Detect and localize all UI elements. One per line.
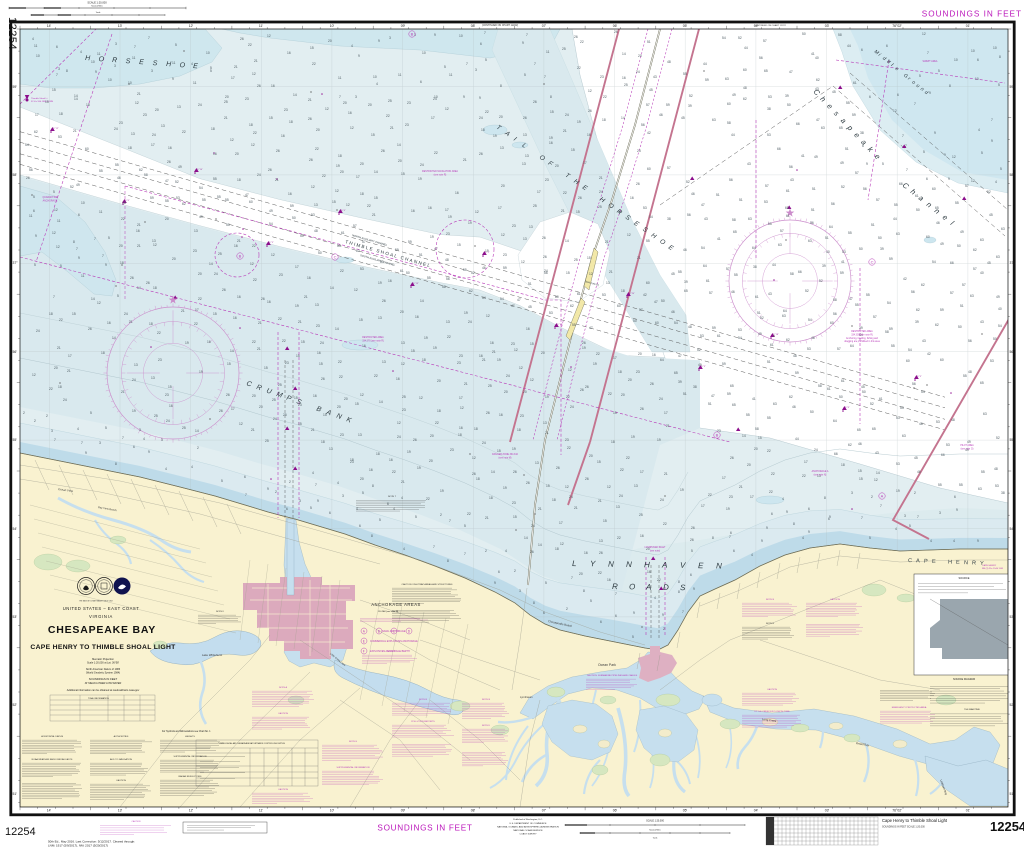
svg-text:40: 40 — [998, 307, 1002, 311]
svg-text:51: 51 — [871, 223, 875, 227]
svg-text:63: 63 — [1001, 227, 1005, 231]
svg-text:4: 4 — [32, 37, 34, 41]
svg-text:56: 56 — [912, 382, 916, 386]
svg-text:57: 57 — [973, 267, 977, 271]
svg-text:14: 14 — [137, 286, 141, 290]
svg-text:50: 50 — [300, 234, 304, 238]
svg-text:6: 6 — [359, 524, 361, 528]
svg-text:25: 25 — [283, 413, 287, 417]
svg-text:61: 61 — [706, 279, 710, 283]
svg-text:13′: 13′ — [118, 809, 123, 813]
svg-text:51: 51 — [739, 198, 743, 202]
svg-text:12254: 12254 — [6, 17, 18, 50]
svg-text:AUTHORITIES: AUTHORITIES — [114, 735, 129, 738]
svg-text:3: 3 — [355, 95, 357, 99]
svg-text:15: 15 — [603, 519, 607, 523]
svg-text:NOTE 7: NOTE 7 — [388, 496, 397, 498]
svg-text:56′: 56′ — [13, 350, 18, 354]
svg-text:18: 18 — [59, 112, 63, 116]
svg-text:4: 4 — [978, 128, 980, 132]
svg-text:60: 60 — [830, 321, 834, 325]
svg-text:61: 61 — [770, 343, 774, 347]
svg-text:47: 47 — [589, 326, 593, 330]
svg-text:58: 58 — [838, 33, 842, 37]
svg-text:50: 50 — [958, 325, 962, 329]
svg-text:21: 21 — [485, 516, 489, 520]
svg-text:51: 51 — [811, 208, 815, 212]
svg-text:53: 53 — [738, 328, 742, 332]
svg-text:55: 55 — [959, 483, 963, 487]
svg-text:25: 25 — [562, 47, 566, 51]
svg-text:2: 2 — [485, 549, 487, 553]
svg-text:13: 13 — [401, 341, 405, 345]
svg-text:44: 44 — [847, 44, 851, 48]
svg-text:51: 51 — [757, 311, 761, 315]
svg-text:21: 21 — [57, 346, 61, 350]
svg-text:TIDAL INFORMATION: TIDAL INFORMATION — [88, 697, 109, 700]
svg-text:59′: 59′ — [1010, 85, 1015, 89]
svg-text:19: 19 — [512, 447, 516, 451]
svg-text:20: 20 — [579, 572, 583, 576]
svg-text:For Symbols and Abbreviations: For Symbols and Abbreviations see Chart … — [162, 730, 211, 733]
svg-text:58′: 58′ — [13, 173, 18, 177]
svg-text:52: 52 — [697, 348, 701, 352]
svg-text:21: 21 — [73, 129, 77, 133]
svg-text:58: 58 — [727, 121, 731, 125]
svg-text:24: 24 — [636, 70, 640, 74]
svg-text:61: 61 — [717, 334, 721, 338]
svg-text:19: 19 — [132, 409, 136, 413]
svg-text:12: 12 — [230, 138, 234, 142]
svg-text:H: H — [644, 560, 650, 569]
svg-text:7: 7 — [245, 493, 247, 497]
svg-text:10: 10 — [206, 51, 210, 55]
svg-text:47: 47 — [816, 118, 820, 122]
svg-text:60: 60 — [655, 321, 659, 325]
svg-text:53: 53 — [337, 244, 341, 248]
svg-text:26: 26 — [533, 100, 537, 104]
svg-text:55: 55 — [213, 177, 217, 181]
svg-text:25: 25 — [265, 439, 269, 443]
svg-text:44: 44 — [893, 217, 897, 221]
svg-text:20: 20 — [316, 128, 320, 132]
svg-text:12: 12 — [874, 478, 878, 482]
svg-text:22: 22 — [769, 490, 773, 494]
svg-text:46: 46 — [691, 192, 695, 196]
svg-text:22: 22 — [182, 130, 186, 134]
svg-text:53: 53 — [995, 484, 999, 488]
svg-text:3: 3 — [139, 428, 141, 432]
svg-text:24: 24 — [63, 398, 67, 402]
svg-text:23: 23 — [284, 108, 288, 112]
svg-text:66: 66 — [834, 452, 838, 456]
svg-text:12: 12 — [530, 378, 534, 382]
svg-text:14′: 14′ — [47, 809, 52, 813]
svg-text:26: 26 — [261, 297, 265, 301]
svg-text:22: 22 — [608, 392, 612, 396]
svg-text:4: 4 — [351, 44, 353, 48]
svg-text:R "20": R "20" — [629, 293, 635, 295]
svg-text:E: E — [193, 63, 198, 70]
svg-text:46: 46 — [117, 176, 121, 180]
svg-text:04′: 04′ — [754, 809, 759, 813]
svg-text:43: 43 — [980, 320, 984, 324]
svg-text:13: 13 — [616, 505, 620, 509]
svg-text:52: 52 — [819, 279, 823, 283]
svg-text:03′: 03′ — [825, 809, 830, 813]
svg-text:CAUTION: CAUTION — [767, 688, 777, 691]
svg-text:66: 66 — [798, 270, 802, 274]
svg-text:43: 43 — [747, 162, 751, 166]
svg-text:LNM: 1917 (5/9/2017), NM: 2017: LNM: 1917 (5/9/2017), NM: 2017 (5/20/201… — [48, 844, 108, 848]
svg-text:14: 14 — [742, 434, 746, 438]
svg-text:Fl 10s 55ft 18M HORN: Fl 10s 55ft 18M HORN — [31, 100, 54, 103]
svg-text:55: 55 — [678, 270, 682, 274]
svg-text:12: 12 — [271, 253, 275, 257]
svg-text:Ocean Park: Ocean Park — [598, 663, 616, 667]
svg-text:59: 59 — [795, 371, 799, 375]
svg-text:14: 14 — [397, 143, 401, 147]
svg-text:17: 17 — [640, 470, 644, 474]
svg-text:B: B — [239, 254, 242, 259]
svg-text:48: 48 — [793, 354, 797, 358]
svg-text:19: 19 — [593, 362, 597, 366]
svg-text:52′: 52′ — [1010, 703, 1015, 707]
svg-text:2: 2 — [871, 495, 873, 499]
svg-text:10: 10 — [108, 78, 112, 82]
svg-text:5: 5 — [362, 491, 364, 495]
svg-text:54: 54 — [908, 348, 912, 352]
svg-text:53: 53 — [946, 443, 950, 447]
svg-text:24: 24 — [198, 103, 202, 107]
svg-text:61: 61 — [786, 214, 790, 218]
svg-text:57: 57 — [873, 315, 877, 319]
svg-text:9: 9 — [991, 139, 993, 143]
svg-text:17: 17 — [151, 143, 155, 147]
svg-text:21: 21 — [298, 320, 302, 324]
svg-text:20: 20 — [165, 217, 169, 221]
svg-text:15: 15 — [355, 402, 359, 406]
svg-text:17: 17 — [356, 175, 360, 179]
svg-text:46: 46 — [919, 422, 923, 426]
svg-text:55: 55 — [165, 199, 169, 203]
svg-text:24: 24 — [257, 173, 261, 177]
svg-text:9: 9 — [479, 96, 481, 100]
svg-text:46: 46 — [858, 442, 862, 446]
svg-text:3: 3 — [475, 68, 477, 72]
svg-text:48: 48 — [968, 370, 972, 374]
svg-text:7: 7 — [682, 610, 684, 614]
svg-text:49: 49 — [758, 332, 762, 336]
svg-text:7: 7 — [53, 295, 55, 299]
svg-text:19: 19 — [896, 489, 900, 493]
svg-text:16: 16 — [490, 341, 494, 345]
svg-text:26: 26 — [543, 255, 547, 259]
svg-text:2: 2 — [23, 411, 25, 415]
svg-text:61: 61 — [841, 379, 845, 383]
svg-text:14: 14 — [524, 536, 528, 540]
svg-text:23: 23 — [405, 123, 409, 127]
svg-text:26: 26 — [599, 551, 603, 555]
svg-text:20: 20 — [638, 352, 642, 356]
svg-text:53: 53 — [768, 95, 772, 99]
svg-text:Yards: Yards — [96, 12, 101, 14]
svg-text:55: 55 — [746, 413, 750, 417]
svg-text:7: 7 — [534, 62, 536, 66]
svg-text:16: 16 — [288, 192, 292, 196]
svg-text:50: 50 — [661, 299, 665, 303]
svg-text:21: 21 — [574, 506, 578, 510]
svg-text:19: 19 — [185, 341, 189, 345]
svg-text:14: 14 — [74, 97, 78, 101]
svg-text:5: 5 — [981, 151, 983, 155]
svg-text:HEIGHTS: HEIGHTS — [185, 736, 195, 738]
svg-text:7: 7 — [56, 73, 58, 77]
svg-text:5: 5 — [909, 524, 911, 528]
svg-text:20: 20 — [400, 310, 404, 314]
svg-text:22: 22 — [157, 331, 161, 335]
svg-text:NATIONAL OCEANIC AND ATMOSPHER: NATIONAL OCEANIC AND ATMOSPHERIC ADMINIS… — [497, 826, 559, 829]
svg-text:57: 57 — [876, 198, 880, 202]
svg-text:21: 21 — [482, 358, 486, 362]
svg-text:54: 54 — [921, 390, 925, 394]
svg-text:22: 22 — [278, 317, 282, 321]
svg-text:8: 8 — [371, 534, 373, 538]
svg-text:19: 19 — [440, 489, 444, 493]
svg-text:58: 58 — [442, 285, 446, 289]
svg-text:26: 26 — [413, 438, 417, 442]
svg-text:39: 39 — [684, 280, 688, 284]
svg-text:6: 6 — [954, 495, 956, 499]
svg-text:AT MEAN LOWER LOW WATER: AT MEAN LOWER LOW WATER — [85, 682, 122, 685]
svg-text:CONTINUED ON CHART 12222: CONTINUED ON CHART 12222 — [754, 24, 786, 27]
svg-text:4: 4 — [143, 437, 145, 441]
svg-text:14: 14 — [374, 170, 378, 174]
svg-text:65: 65 — [785, 206, 789, 210]
svg-text:21: 21 — [372, 213, 376, 217]
svg-text:53: 53 — [990, 359, 994, 363]
svg-text:11: 11 — [546, 50, 550, 54]
svg-text:4: 4 — [165, 467, 167, 471]
svg-text:PILOT AREA: PILOT AREA — [960, 444, 974, 447]
svg-text:49: 49 — [960, 230, 964, 234]
svg-text:COAST SURVEY: COAST SURVEY — [519, 833, 537, 836]
svg-text:4: 4 — [77, 427, 79, 431]
svg-text:4: 4 — [191, 465, 193, 469]
svg-text:52: 52 — [70, 185, 74, 189]
svg-text:19: 19 — [448, 215, 452, 219]
svg-text:7: 7 — [102, 254, 104, 258]
svg-text:13: 13 — [177, 105, 181, 109]
svg-text:09′: 09′ — [401, 809, 406, 813]
svg-text:ANCHORAGE AREAS: ANCHORAGE AREAS — [371, 602, 421, 607]
svg-text:20: 20 — [198, 272, 202, 276]
svg-text:21: 21 — [561, 209, 565, 213]
svg-text:22: 22 — [367, 204, 371, 208]
svg-text:5: 5 — [524, 73, 526, 77]
svg-text:22: 22 — [252, 340, 256, 344]
svg-text:6: 6 — [926, 177, 928, 181]
svg-text:63: 63 — [808, 239, 812, 243]
svg-text:THE MARITIME: THE MARITIME — [964, 708, 980, 711]
svg-text:21: 21 — [563, 129, 567, 133]
svg-text:03′: 03′ — [825, 24, 830, 28]
svg-text:16: 16 — [136, 229, 140, 233]
svg-text:16: 16 — [622, 76, 626, 80]
svg-text:13: 13 — [500, 146, 504, 150]
svg-text:14: 14 — [876, 471, 880, 475]
svg-text:21: 21 — [666, 424, 670, 428]
svg-text:44: 44 — [731, 133, 735, 137]
svg-text:56′: 56′ — [1010, 350, 1015, 354]
svg-text:3: 3 — [115, 42, 117, 46]
svg-text:7: 7 — [315, 483, 317, 487]
svg-text:53′: 53′ — [13, 615, 18, 619]
svg-text:26: 26 — [580, 388, 584, 392]
svg-text:16: 16 — [411, 209, 415, 213]
svg-text:20: 20 — [368, 103, 372, 107]
svg-text:SOUNDINGS IN FEET: SOUNDINGS IN FEET — [922, 10, 1022, 19]
svg-text:10: 10 — [971, 49, 975, 53]
svg-text:50: 50 — [802, 32, 806, 36]
svg-text:18: 18 — [474, 427, 478, 431]
svg-text:54: 54 — [500, 297, 504, 301]
svg-text:59: 59 — [852, 113, 856, 117]
svg-text:23: 23 — [165, 393, 169, 397]
svg-text:57: 57 — [726, 267, 730, 271]
svg-text:11: 11 — [398, 73, 402, 77]
svg-text:24: 24 — [599, 190, 603, 194]
svg-text:6: 6 — [498, 570, 500, 574]
svg-text:22: 22 — [563, 191, 567, 195]
svg-text:26: 26 — [26, 176, 30, 180]
svg-text:13: 13 — [134, 363, 138, 367]
svg-text:12: 12 — [607, 485, 611, 489]
svg-text:26: 26 — [526, 481, 530, 485]
svg-text:52: 52 — [870, 402, 874, 406]
svg-text:54: 54 — [701, 246, 705, 250]
svg-text:10: 10 — [36, 54, 40, 58]
svg-text:66: 66 — [941, 453, 945, 457]
svg-text:53: 53 — [700, 334, 704, 338]
svg-text:60: 60 — [617, 304, 621, 308]
svg-text:15: 15 — [550, 110, 554, 114]
svg-text:56: 56 — [729, 178, 733, 182]
svg-text:13: 13 — [382, 360, 386, 364]
svg-text:65: 65 — [684, 289, 688, 293]
svg-text:7: 7 — [134, 45, 136, 49]
svg-text:19: 19 — [485, 249, 489, 253]
svg-text:4: 4 — [953, 539, 955, 543]
svg-text:55: 55 — [938, 483, 942, 487]
svg-text:55: 55 — [115, 163, 119, 167]
svg-text:5: 5 — [53, 190, 55, 194]
svg-text:24: 24 — [420, 163, 424, 167]
svg-text:26: 26 — [530, 550, 534, 554]
svg-text:52: 52 — [689, 94, 693, 98]
svg-text:19: 19 — [378, 281, 382, 285]
svg-text:22: 22 — [194, 322, 198, 326]
svg-text:9: 9 — [78, 256, 80, 260]
svg-text:59: 59 — [722, 362, 726, 366]
svg-text:51: 51 — [716, 193, 720, 197]
svg-text:Anchoring, trawling, fishing a: Anchoring, trawling, fishing and — [846, 337, 879, 340]
svg-text:6: 6 — [897, 93, 899, 97]
svg-text:65: 65 — [730, 384, 734, 388]
svg-text:22: 22 — [663, 522, 667, 526]
svg-text:64: 64 — [783, 309, 787, 313]
svg-text:5: 5 — [34, 263, 36, 267]
svg-text:13: 13 — [599, 539, 603, 543]
svg-text:15: 15 — [298, 422, 302, 426]
svg-text:E: E — [956, 560, 960, 566]
svg-text:15: 15 — [122, 201, 126, 205]
svg-text:CAUTION: SUBMARINE PIPELINES A: CAUTION: SUBMARINE PIPELINES AND CABLES — [587, 674, 638, 677]
svg-text:48: 48 — [445, 258, 449, 262]
svg-text:40: 40 — [980, 271, 984, 275]
svg-text:18: 18 — [841, 463, 845, 467]
svg-text:11: 11 — [193, 81, 197, 85]
svg-text:RB (3) 25s 154ft 15M: RB (3) 25s 154ft 15M — [982, 567, 1003, 570]
svg-text:58: 58 — [755, 427, 759, 431]
svg-text:5: 5 — [919, 74, 921, 78]
svg-text:13: 13 — [529, 225, 533, 229]
svg-text:50: 50 — [862, 390, 866, 394]
svg-text:22: 22 — [626, 456, 630, 460]
svg-text:25: 25 — [488, 384, 492, 388]
svg-text:07′: 07′ — [542, 24, 547, 28]
svg-text:13: 13 — [378, 316, 382, 320]
svg-text:22: 22 — [338, 360, 342, 364]
svg-text:QUARANTINE: QUARANTINE — [42, 196, 58, 199]
svg-text:24: 24 — [320, 341, 324, 345]
svg-text:24: 24 — [660, 498, 664, 502]
svg-text:18: 18 — [489, 496, 493, 500]
svg-text:7: 7 — [76, 247, 78, 251]
svg-text:North American Datum of 1983: North American Datum of 1983 — [86, 668, 121, 671]
svg-text:62: 62 — [570, 304, 574, 308]
svg-text:58: 58 — [790, 272, 794, 276]
svg-text:51′: 51′ — [1010, 792, 1015, 796]
svg-text:45: 45 — [671, 272, 675, 276]
svg-text:19: 19 — [407, 450, 411, 454]
svg-text:14: 14 — [91, 297, 95, 301]
svg-text:46: 46 — [936, 221, 940, 225]
svg-text:7: 7 — [991, 118, 993, 122]
svg-text:50: 50 — [633, 319, 637, 323]
svg-text:20: 20 — [337, 405, 341, 409]
svg-text:20: 20 — [747, 463, 751, 467]
svg-text:12: 12 — [252, 72, 256, 76]
svg-text:19: 19 — [433, 346, 437, 350]
svg-text:23: 23 — [193, 249, 197, 253]
svg-text:26: 26 — [276, 149, 280, 153]
svg-text:3: 3 — [161, 438, 163, 442]
svg-text:18: 18 — [211, 127, 215, 131]
svg-text:17: 17 — [701, 504, 705, 508]
svg-text:41: 41 — [717, 237, 721, 241]
svg-text:7: 7 — [914, 102, 916, 106]
svg-text:9: 9 — [95, 70, 97, 74]
svg-text:26: 26 — [222, 288, 226, 292]
svg-text:22: 22 — [620, 468, 624, 472]
svg-text:54: 54 — [808, 318, 812, 322]
svg-text:20: 20 — [398, 159, 402, 163]
svg-text:63: 63 — [902, 434, 906, 438]
svg-text:21: 21 — [401, 480, 405, 484]
svg-text:52: 52 — [471, 271, 475, 275]
svg-text:THIMBLE SHOAL AND CHESAPEAKE B: THIMBLE SHOAL AND CHESAPEAKE BAY ENTRANC… — [218, 742, 286, 745]
